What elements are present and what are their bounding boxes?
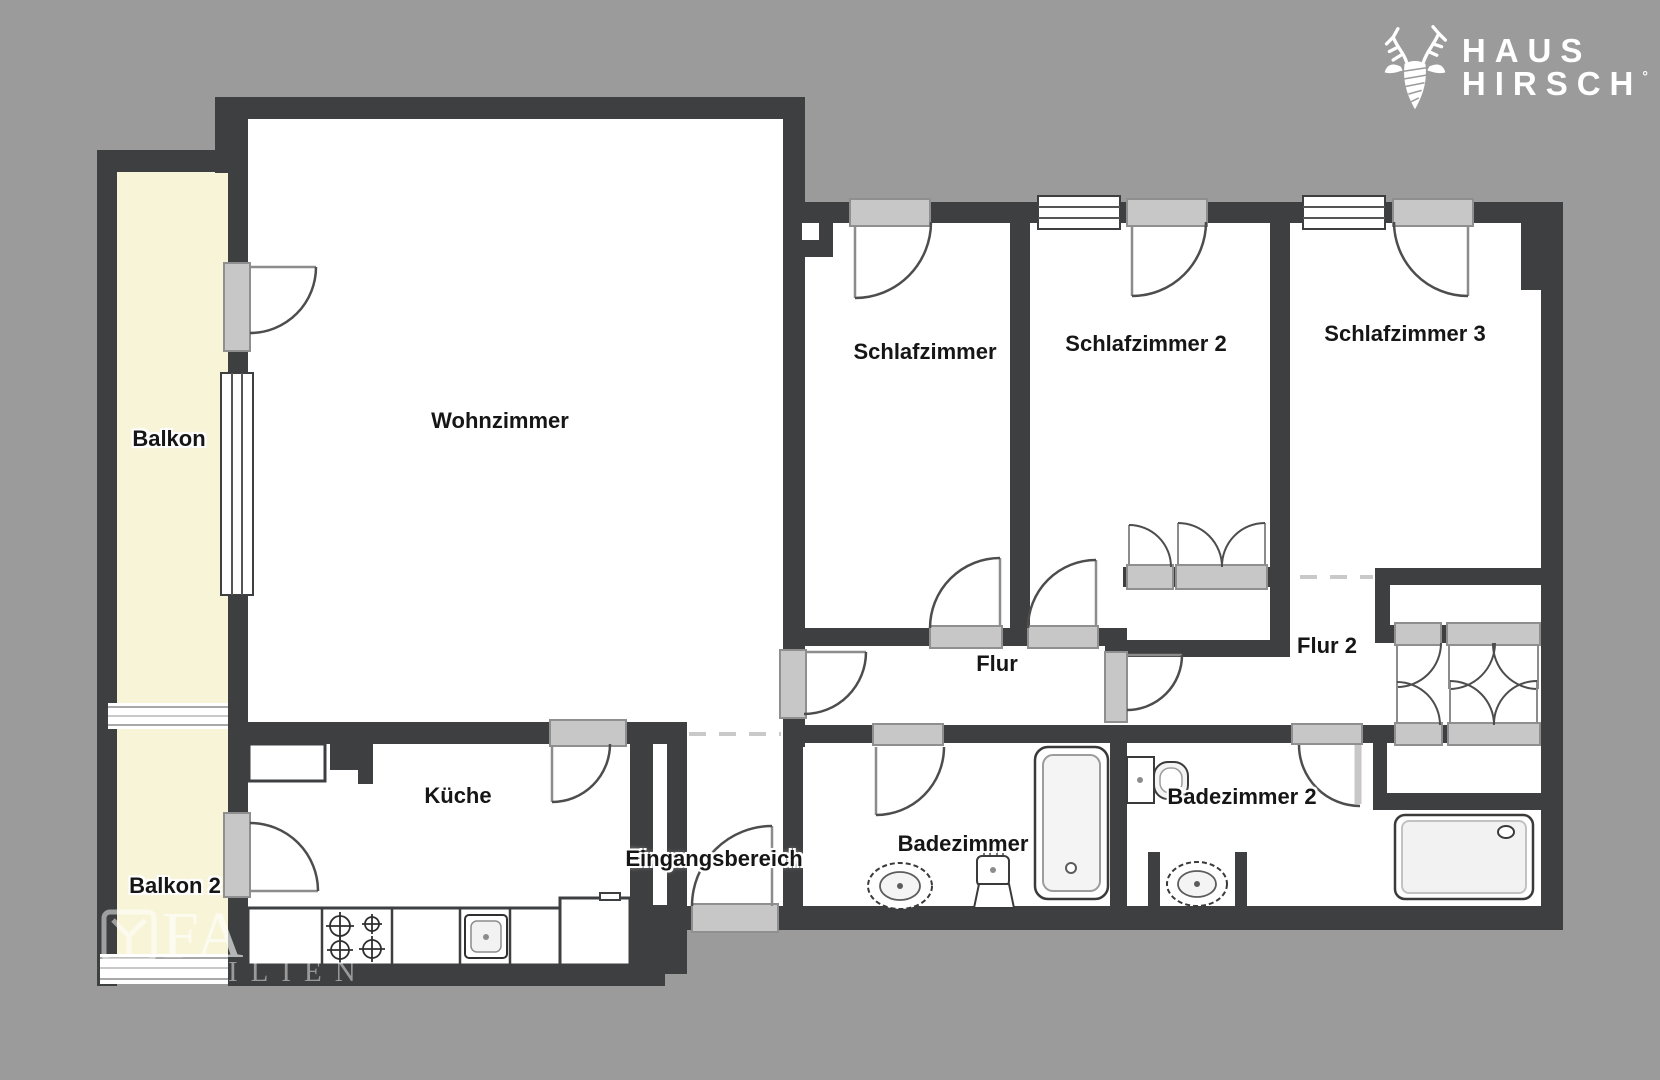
opening-closet-s2-a bbox=[1127, 565, 1173, 589]
toilet-2-icon bbox=[1167, 862, 1227, 906]
room-label-flur-2: Flur 2 bbox=[1297, 633, 1357, 659]
room-label-wohnzimmer: Wohnzimmer bbox=[431, 408, 569, 434]
watermark-small-text: ILIEN bbox=[228, 956, 369, 989]
brand-line-1: HAUS bbox=[1462, 34, 1648, 67]
opening-flur-schlafzimmer2 bbox=[1028, 626, 1098, 648]
opening-flur-schlafzimmer bbox=[930, 626, 1002, 648]
opening-kueche bbox=[550, 720, 626, 746]
floor-plan-drawing bbox=[0, 0, 1660, 1080]
opening-schlafzimmer bbox=[850, 199, 930, 226]
opening-entrance bbox=[692, 904, 778, 932]
room-label-eingangsbereich: Eingangsbereich bbox=[625, 846, 802, 872]
opening-closet-lower-b bbox=[1448, 723, 1540, 745]
opening-balkon-wohnzimmer bbox=[224, 263, 250, 351]
room-label-schlafzimmer-2: Schlafzimmer 2 bbox=[1065, 331, 1226, 357]
kitchen-sink-icon bbox=[465, 915, 507, 958]
shower-tray-icon bbox=[1395, 815, 1533, 899]
balcony-floor bbox=[117, 172, 228, 958]
opening-closet-lower-a bbox=[1395, 723, 1442, 745]
opening-schlafzimmer-3 bbox=[1393, 199, 1473, 226]
room-label-badezimmer: Badezimmer bbox=[898, 831, 1029, 857]
floor-plan-page: BalkonBalkon 2WohnzimmerKücheEingangsber… bbox=[0, 0, 1660, 1080]
opening-closet-upper-a bbox=[1395, 623, 1441, 645]
window-balcony bbox=[221, 373, 253, 595]
brand-line-2: HIRSCH° bbox=[1462, 67, 1648, 100]
window-schlafzimmer-3 bbox=[1303, 196, 1385, 229]
registered-mark: ° bbox=[1642, 68, 1648, 84]
brand-logo: HAUS HIRSCH° bbox=[1378, 20, 1648, 120]
opening-flur-flur2 bbox=[1105, 652, 1127, 722]
opening-flur2-badezimmer2 bbox=[1292, 724, 1362, 744]
deer-antlers-icon bbox=[1378, 20, 1454, 118]
shield-y-icon bbox=[100, 908, 160, 966]
opening-schlafzimmer-2 bbox=[1127, 199, 1207, 226]
room-label-badezimmer-2: Badezimmer 2 bbox=[1167, 784, 1316, 810]
room-label-schlafzimmer-3: Schlafzimmer 3 bbox=[1324, 321, 1485, 347]
opening-wohnzimmer-flur bbox=[780, 650, 806, 718]
window-schlafzimmer-2 bbox=[1038, 196, 1120, 229]
opening-closet-s2-b bbox=[1176, 565, 1267, 589]
room-label-schlafzimmer: Schlafzimmer bbox=[853, 339, 996, 365]
room-label-kueche: Küche bbox=[424, 783, 491, 809]
opening-balkon2-kueche bbox=[224, 813, 250, 897]
pedestal-sink-icon bbox=[974, 848, 1014, 908]
opening-flur-badezimmer bbox=[873, 724, 943, 745]
toilet-icon bbox=[868, 863, 932, 909]
room-label-balkon: Balkon bbox=[132, 426, 205, 452]
kitchen-niche bbox=[249, 744, 325, 781]
bathtub-icon bbox=[1035, 747, 1108, 899]
wall-notch bbox=[802, 223, 819, 240]
opening-closet-upper-b bbox=[1447, 623, 1540, 645]
room-label-flur: Flur bbox=[976, 651, 1018, 677]
room-label-balkon-2: Balkon 2 bbox=[129, 873, 221, 899]
